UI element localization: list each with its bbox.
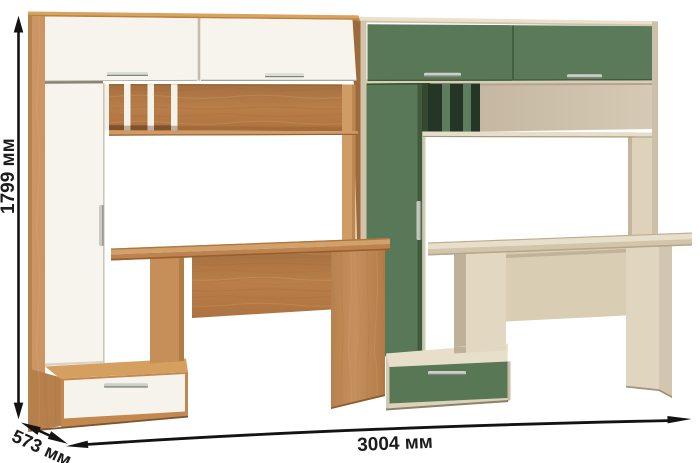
svg-text:1799 мм: 1799 мм bbox=[0, 138, 19, 214]
svg-text:3004 мм: 3004 мм bbox=[357, 432, 434, 456]
